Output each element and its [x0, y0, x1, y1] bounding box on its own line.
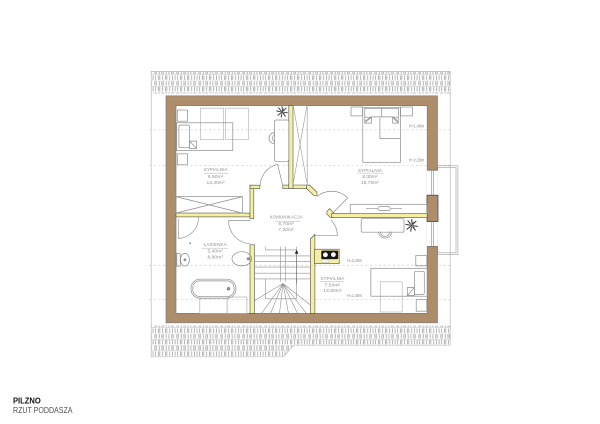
- svg-text:SYPIALNIA: SYPIALNIA: [320, 276, 345, 281]
- svg-text:H=1,40m: H=1,40m: [409, 123, 425, 128]
- svg-text:8,90m²: 8,90m²: [208, 255, 224, 260]
- svg-text:13,80m²: 13,80m²: [323, 288, 342, 293]
- svg-text:KOMUNIKACJA: KOMUNIKACJA: [270, 214, 304, 219]
- svg-text:SYPIALNIA: SYPIALNIA: [204, 167, 229, 172]
- svg-text:6,50m²: 6,50m²: [208, 174, 224, 179]
- svg-text:SYPIALNIA: SYPIALNIA: [358, 168, 383, 173]
- svg-text:5,40m²: 5,40m²: [208, 249, 224, 254]
- svg-text:PILZNO: PILZNO: [13, 396, 41, 406]
- svg-text:8,30m²: 8,30m²: [362, 174, 378, 179]
- svg-text:5,70m²: 5,70m²: [278, 221, 294, 226]
- svg-text:H=1,40m: H=1,40m: [347, 293, 363, 298]
- svg-text:ŁAZIENKA: ŁAZIENKA: [204, 242, 228, 247]
- svg-text:16,70m²: 16,70m²: [361, 180, 380, 185]
- svg-text:7,20m²: 7,20m²: [278, 227, 294, 232]
- svg-text:H=2,20m: H=2,20m: [409, 158, 425, 163]
- svg-text:H=2,20m: H=2,20m: [347, 258, 363, 263]
- svg-text:RZUT PODDASZA: RZUT PODDASZA: [13, 406, 73, 415]
- svg-text:13,40m²: 13,40m²: [207, 180, 226, 185]
